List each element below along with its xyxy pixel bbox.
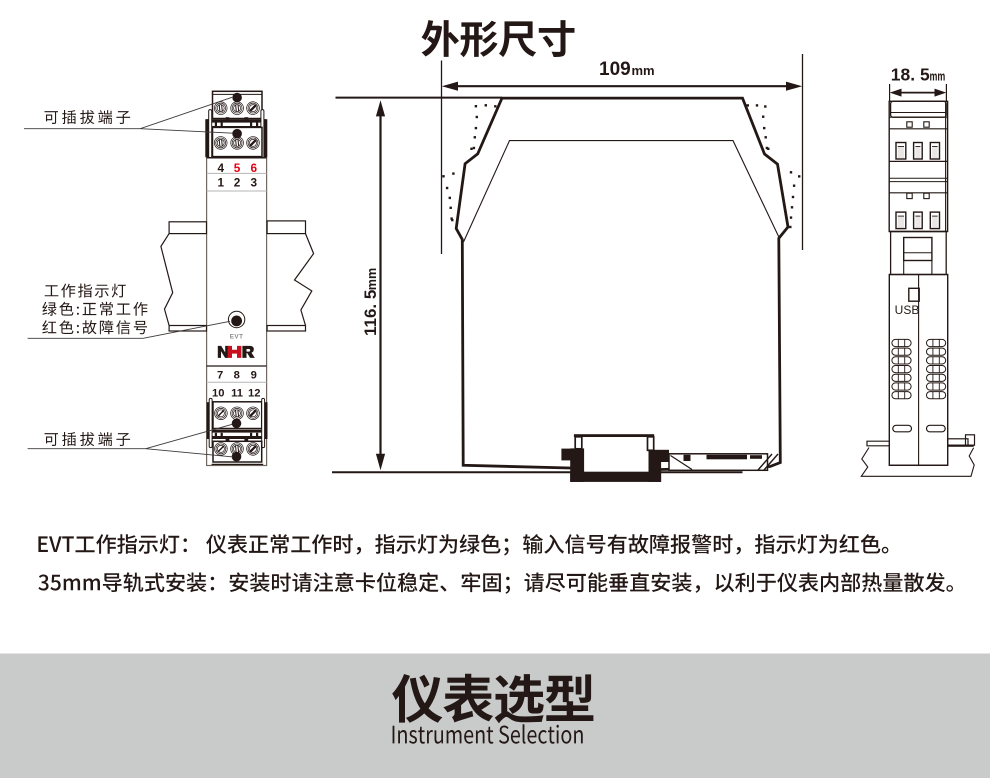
svg-text:4: 4: [218, 161, 225, 175]
svg-text:2: 2: [234, 175, 241, 189]
svg-text:mm: mm: [632, 63, 655, 78]
svg-text:3: 3: [251, 175, 258, 189]
svg-text:116. 5: 116. 5: [361, 290, 380, 336]
svg-text:8: 8: [234, 370, 240, 382]
svg-text:12: 12: [248, 387, 260, 399]
svg-text:109: 109: [599, 59, 631, 80]
svg-text:6: 6: [251, 161, 258, 175]
svg-text:1: 1: [218, 175, 225, 189]
svg-text:9: 9: [251, 370, 257, 382]
svg-text:7: 7: [217, 370, 223, 382]
svg-text:18. 5: 18. 5: [891, 64, 930, 84]
svg-text:mm: mm: [365, 268, 379, 290]
svg-text:mm: mm: [930, 69, 946, 83]
svg-text:EVT: EVT: [230, 334, 244, 341]
svg-text:11: 11: [231, 387, 243, 399]
svg-text:5: 5: [234, 161, 241, 175]
svg-text:10: 10: [212, 387, 224, 399]
svg-text:USB: USB: [895, 303, 920, 317]
